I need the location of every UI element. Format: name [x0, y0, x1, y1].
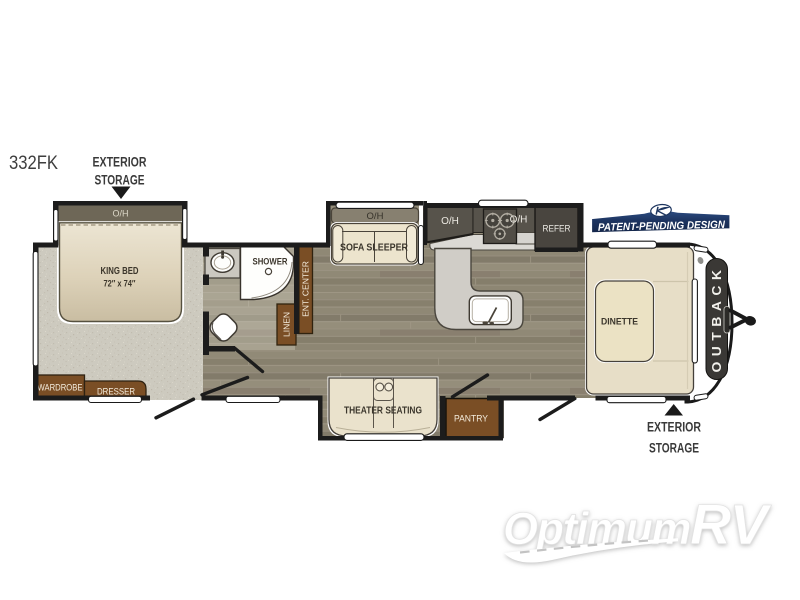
svg-text:WARDROBE: WARDROBE: [38, 383, 83, 394]
svg-text:EXTERIOR: EXTERIOR: [647, 420, 701, 435]
svg-text:SHOWER: SHOWER: [253, 257, 288, 267]
svg-text:PANTRY: PANTRY: [454, 414, 488, 424]
svg-text:O/H: O/H: [112, 209, 128, 219]
svg-text:332FK: 332FK: [9, 153, 58, 174]
svg-text:O/H: O/H: [441, 216, 459, 227]
svg-text:STORAGE: STORAGE: [649, 441, 699, 456]
svg-text:O/H: O/H: [510, 215, 528, 226]
svg-text:OUTBACK: OUTBACK: [710, 265, 724, 373]
svg-text:LINEN: LINEN: [282, 312, 292, 337]
svg-text:STORAGE: STORAGE: [95, 173, 145, 188]
svg-text:KING BED: KING BED: [101, 266, 139, 277]
svg-text:O/H: O/H: [367, 211, 384, 222]
svg-text:REFER: REFER: [543, 224, 571, 235]
svg-text:OptimumRV: OptimumRV: [503, 493, 772, 557]
svg-text:72″ x 74″: 72″ x 74″: [104, 279, 136, 290]
svg-text:EXTERIOR: EXTERIOR: [93, 155, 147, 170]
svg-text:SOFA SLEEPER: SOFA SLEEPER: [340, 242, 408, 254]
svg-text:DINETTE: DINETTE: [601, 317, 638, 328]
svg-text:ENT. CENTER: ENT. CENTER: [301, 261, 311, 317]
svg-text:THEATER SEATING: THEATER SEATING: [344, 405, 422, 417]
